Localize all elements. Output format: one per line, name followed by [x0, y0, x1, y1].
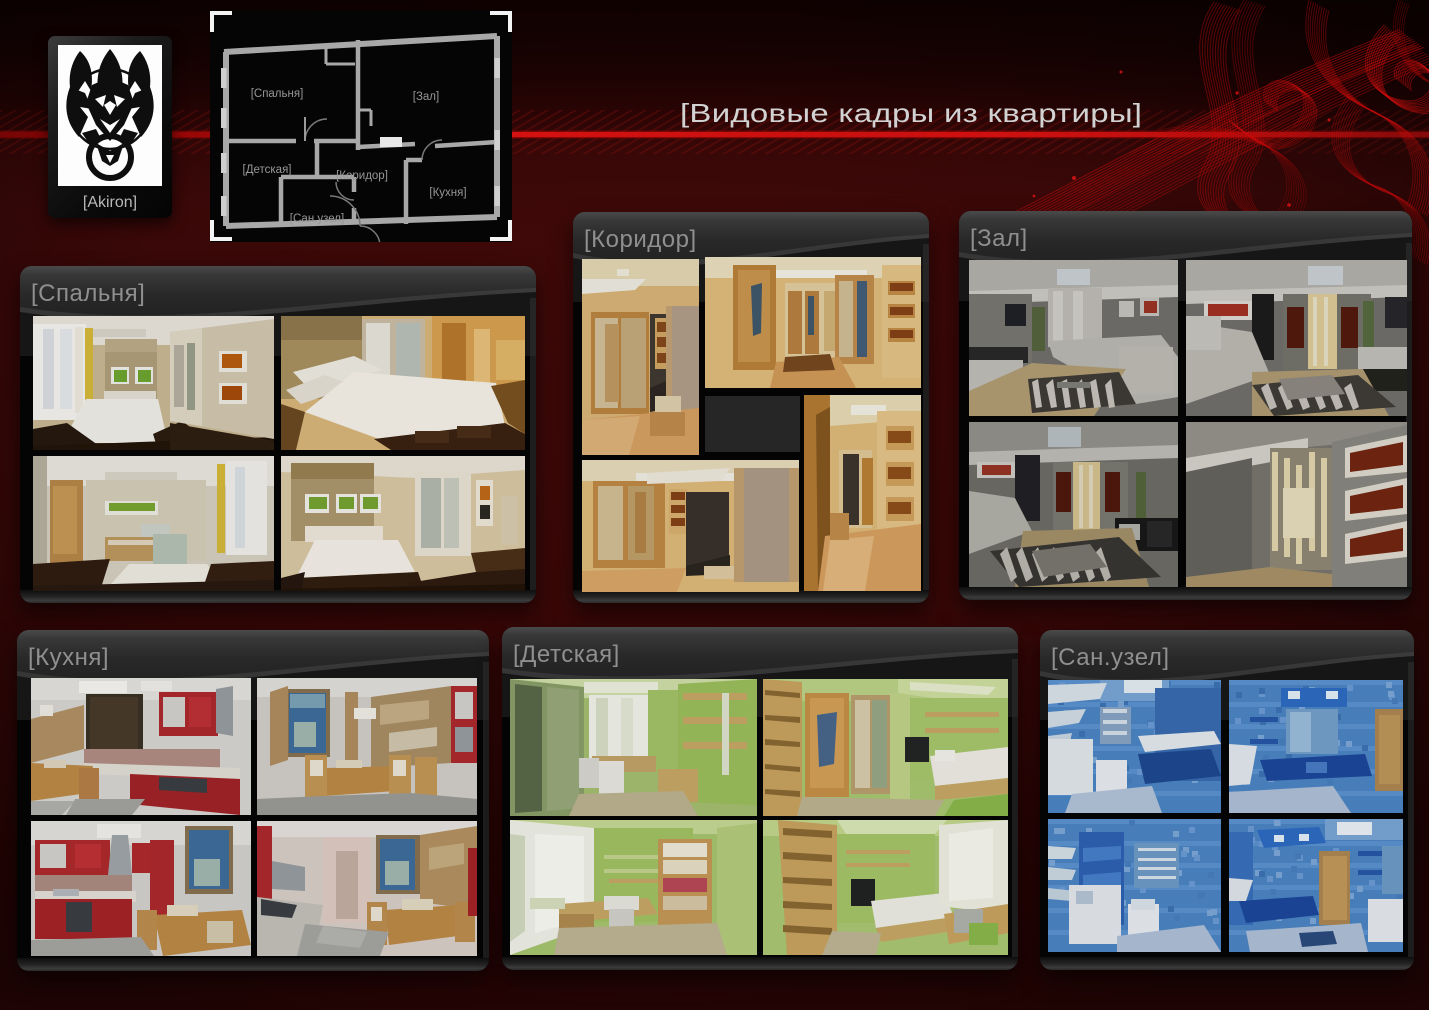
svg-text:[Детская]: [Детская]: [243, 164, 292, 176]
svg-text:[Сан.узел]: [Сан.узел]: [290, 213, 344, 225]
svg-text:[Коридор]: [Коридор]: [336, 170, 388, 182]
svg-text:[Кухня]: [Кухня]: [429, 187, 466, 199]
svg-text:[Спальня]: [Спальня]: [251, 88, 304, 100]
svg-text:[Зал]: [Зал]: [413, 91, 439, 103]
